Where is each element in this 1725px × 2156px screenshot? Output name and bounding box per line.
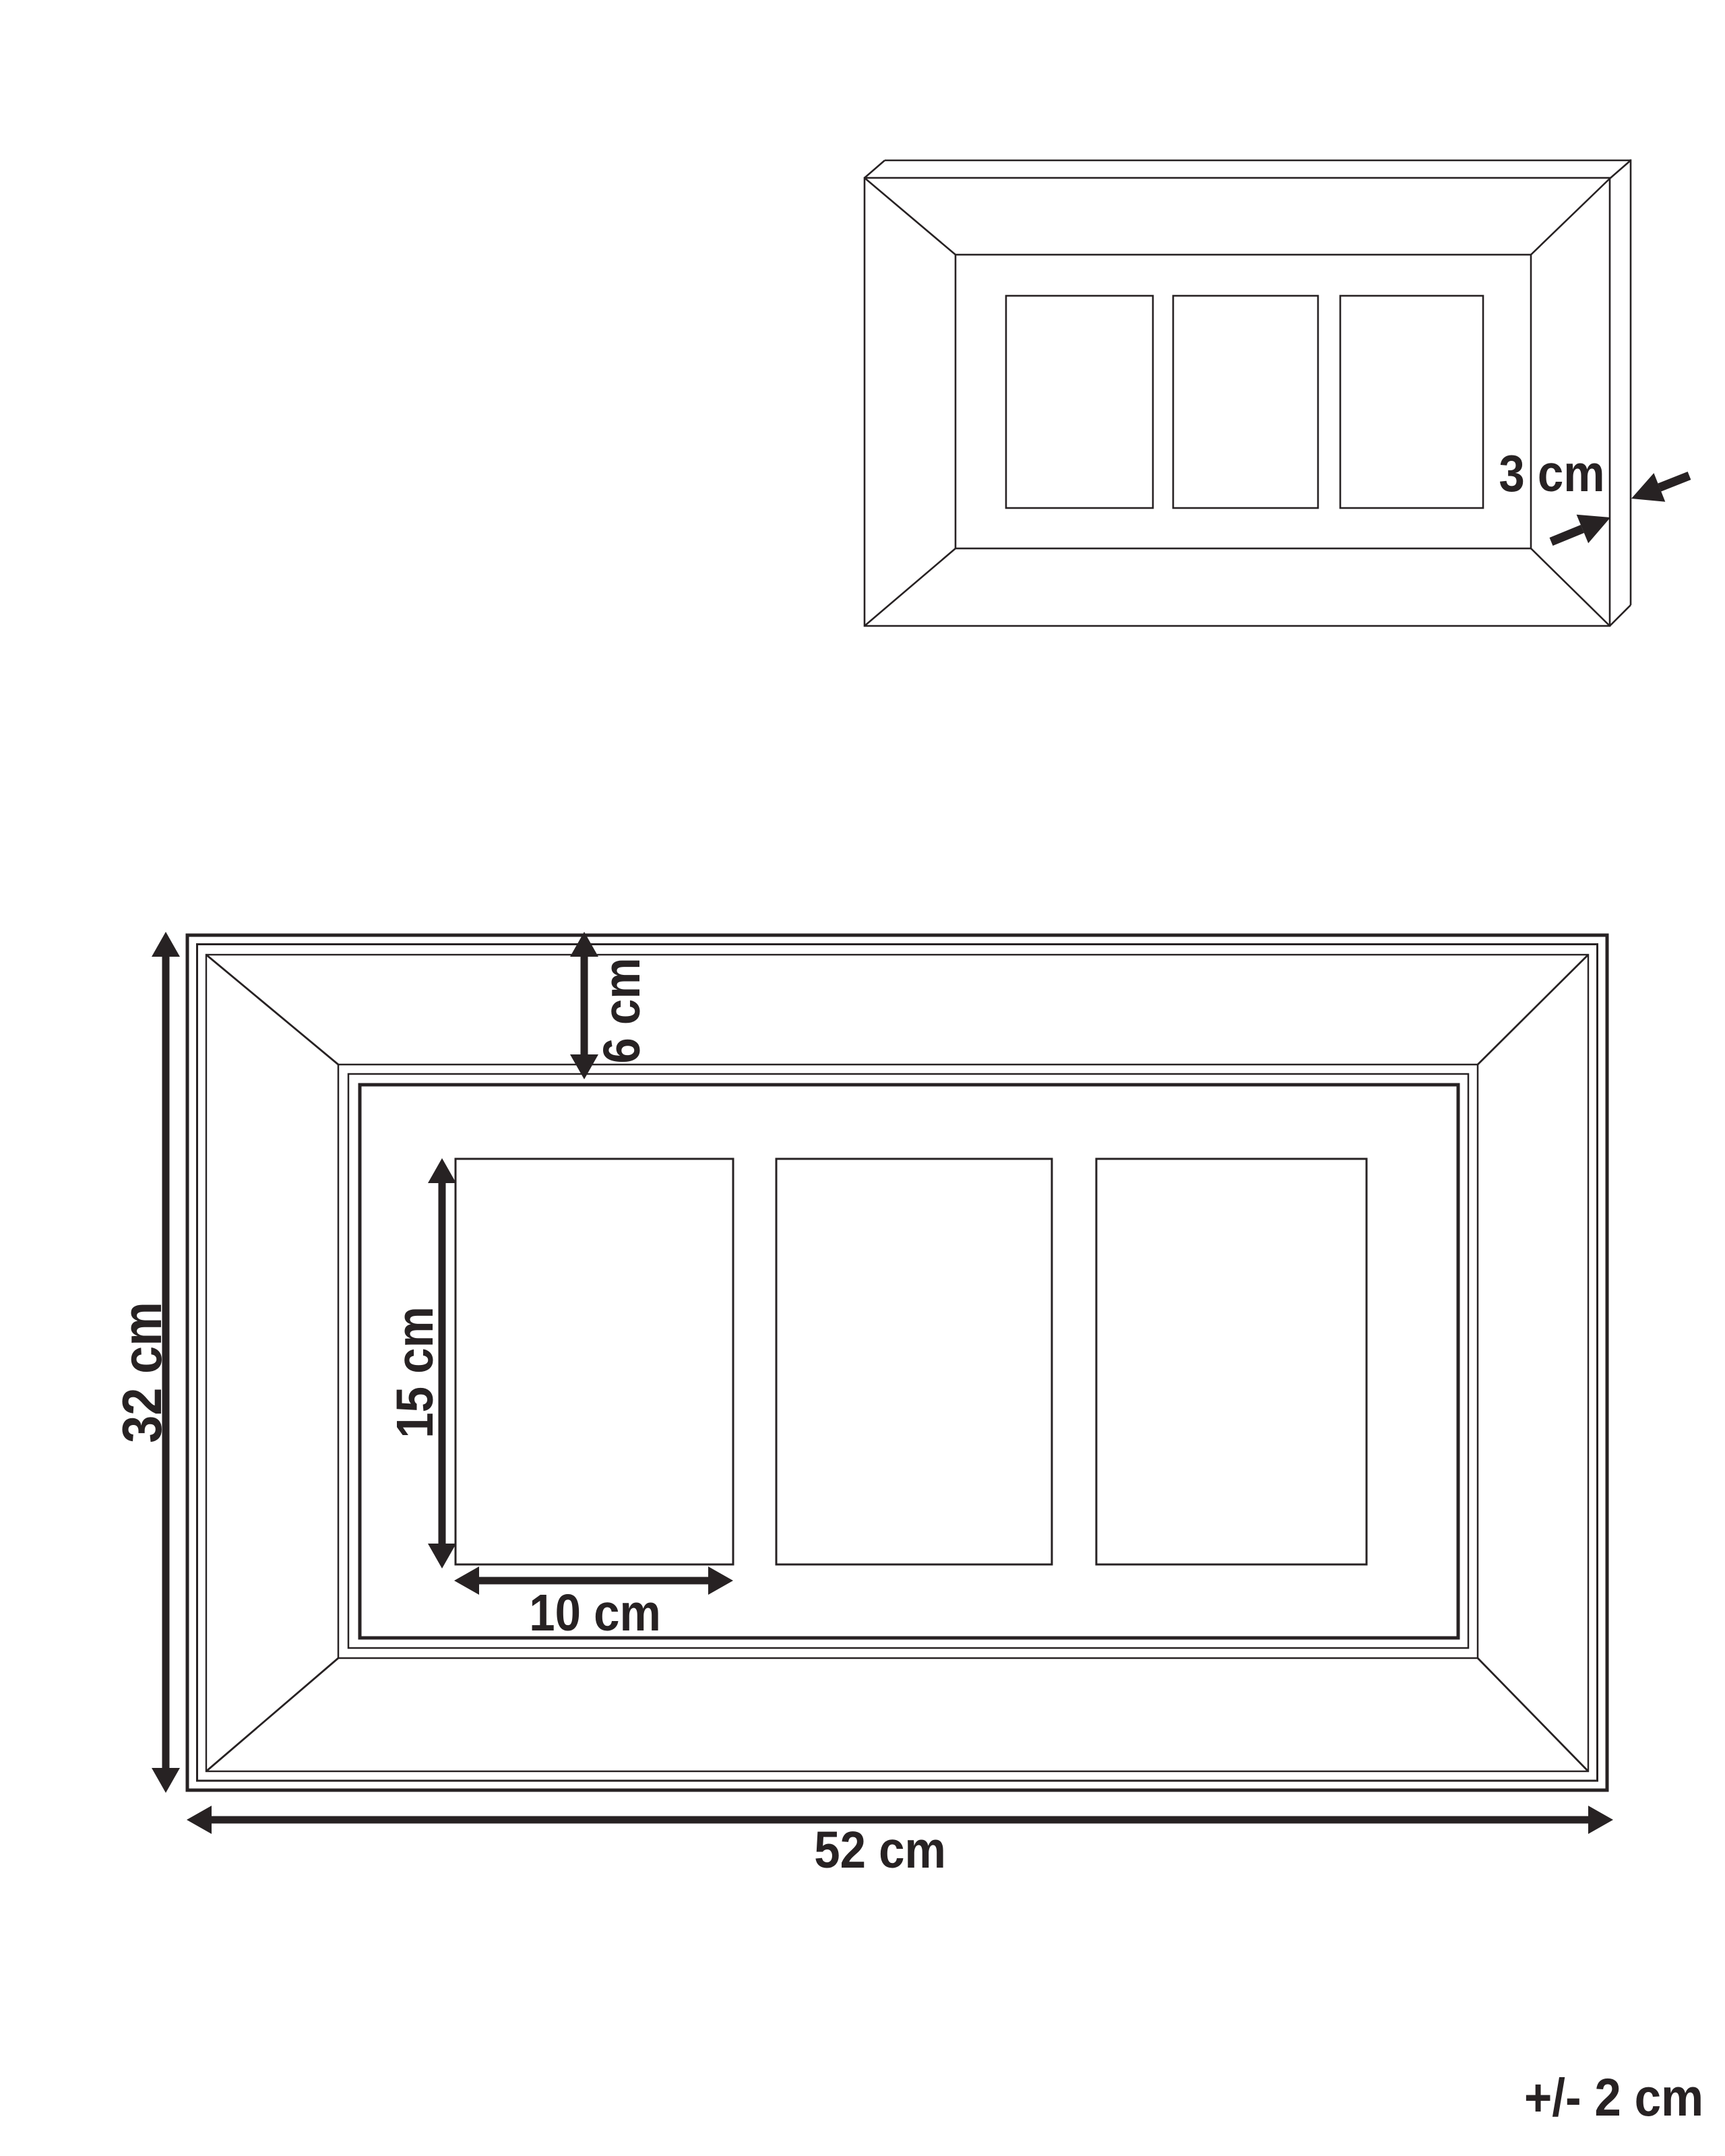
svg-text:32 cm: 32 cm [111, 1302, 173, 1443]
svg-text:15 cm: 15 cm [387, 1306, 444, 1438]
svg-text:3 cm: 3 cm [1499, 445, 1604, 503]
svg-text:6 cm: 6 cm [594, 957, 651, 1063]
svg-text:52 cm: 52 cm [814, 1822, 946, 1879]
svg-text:10 cm: 10 cm [529, 1585, 661, 1642]
svg-text:+/- 2 cm: +/- 2 cm [1524, 2067, 1703, 2126]
